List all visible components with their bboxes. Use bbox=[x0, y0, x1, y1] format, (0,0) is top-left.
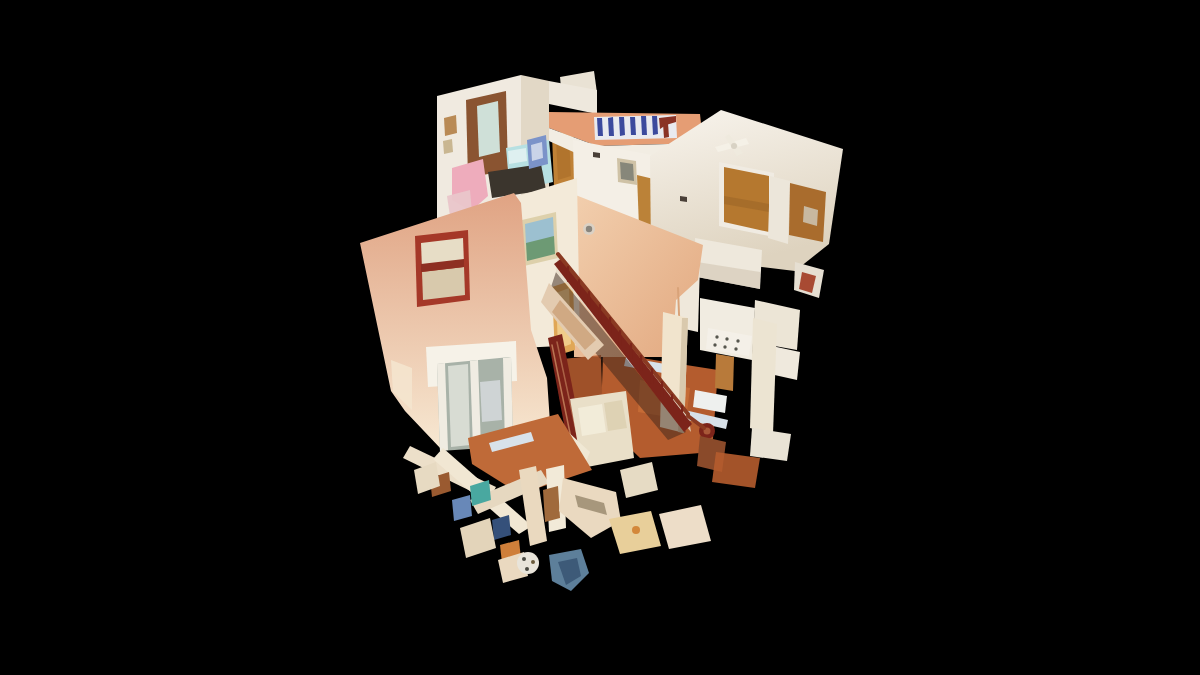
terrace-rail-red-leg bbox=[663, 123, 669, 138]
sofa-cushion-1 bbox=[578, 404, 606, 436]
terrace-rail-blue-1 bbox=[597, 118, 603, 136]
hall-vent bbox=[593, 152, 600, 158]
roomA-wall-frame-1 bbox=[444, 115, 457, 136]
jacuzzi-jet-1 bbox=[715, 335, 718, 338]
dollhouse-3d-view[interactable] bbox=[0, 0, 1200, 675]
terrace-rail-blue-6 bbox=[652, 116, 658, 135]
terrace-rail-blue-4 bbox=[630, 117, 636, 135]
screen: { "viewer": { "mode": "dollhouse-3d", "c… bbox=[0, 0, 1200, 675]
interior-window-pane-bottom bbox=[422, 267, 465, 300]
table-plate-2 bbox=[531, 560, 535, 564]
table-plate-3 bbox=[525, 567, 529, 571]
terrace-rail-blue-5 bbox=[641, 116, 647, 135]
table-plate-1 bbox=[522, 557, 526, 561]
jacuzzi-jet-5 bbox=[723, 345, 726, 348]
roomD-closet2-open-door bbox=[768, 176, 790, 244]
roomA-blue-art-highlight bbox=[531, 142, 543, 161]
terrace-rail-blue-2 bbox=[608, 117, 614, 136]
debris-brown-2 bbox=[543, 486, 560, 522]
debris-orange-dot bbox=[632, 526, 640, 534]
hall-picture-art bbox=[620, 162, 634, 181]
roomA-wardrobe-mirror bbox=[477, 101, 500, 157]
jacuzzi-jet-3 bbox=[736, 339, 739, 342]
jacuzzi-jet-6 bbox=[734, 347, 737, 350]
landing-wood-piece bbox=[715, 354, 734, 391]
terrace-rail-blue-3 bbox=[619, 117, 625, 136]
jacuzzi-jet-2 bbox=[725, 337, 728, 340]
jacuzzi-jet-4 bbox=[713, 343, 716, 346]
roomD-fan-hub bbox=[731, 143, 737, 149]
center-wall-handle bbox=[586, 226, 592, 232]
viewer-stage bbox=[0, 0, 1200, 675]
glass-door-reflection bbox=[480, 380, 502, 422]
right-floor-bits bbox=[712, 452, 760, 488]
roomD-vent bbox=[680, 196, 687, 202]
cut-wall-right bbox=[750, 318, 777, 434]
glass-door-curtain bbox=[448, 364, 470, 447]
roomA-wall-frame-2 bbox=[443, 139, 453, 154]
